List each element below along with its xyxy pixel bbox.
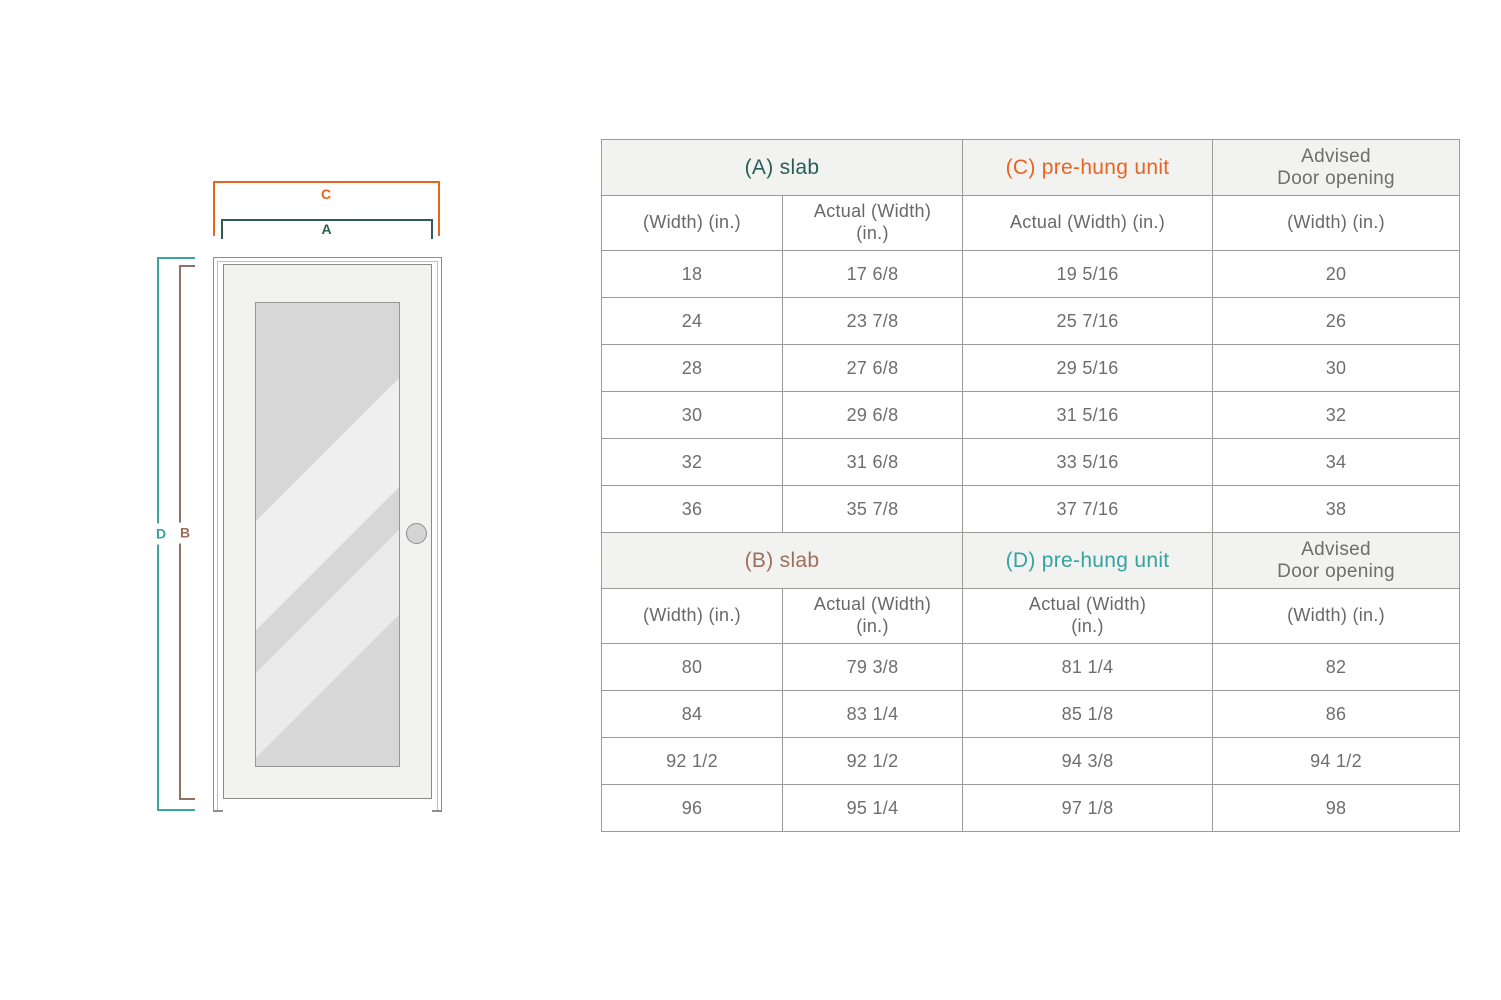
size-cell: 30 bbox=[602, 392, 783, 439]
dimension-d-label: D bbox=[155, 524, 168, 545]
door-diagram: C A D B bbox=[0, 0, 600, 1000]
size-cell: 29 6/8 bbox=[783, 392, 963, 439]
size-cell: 33 5/16 bbox=[963, 439, 1213, 486]
size-cell: 79 3/8 bbox=[783, 644, 963, 691]
table-row: 3231 6/833 5/1634 bbox=[602, 439, 1460, 486]
table-row: 8079 3/881 1/482 bbox=[602, 644, 1460, 691]
door-jamb-right-foot bbox=[432, 810, 442, 812]
door-jamb-left-foot bbox=[213, 810, 223, 812]
size-cell: 38 bbox=[1213, 486, 1460, 533]
section-header-row: (B) slab(D) pre-hung unitAdvised Door op… bbox=[602, 533, 1460, 589]
size-cell: 25 7/16 bbox=[963, 298, 1213, 345]
column-header-cell: Actual (Width) (in.) bbox=[963, 196, 1213, 251]
size-cell: 26 bbox=[1213, 298, 1460, 345]
column-header-row: (Width) (in.)Actual (Width) (in.)Actual … bbox=[602, 589, 1460, 644]
size-cell: 80 bbox=[602, 644, 783, 691]
table-row: 3029 6/831 5/1632 bbox=[602, 392, 1460, 439]
size-cell: 97 1/8 bbox=[963, 785, 1213, 832]
column-header-cell: Actual (Width) (in.) bbox=[783, 196, 963, 251]
dimension-b-label: B bbox=[179, 522, 192, 543]
size-cell: 23 7/8 bbox=[783, 298, 963, 345]
section-header-cell: (D) pre-hung unit bbox=[963, 533, 1213, 589]
size-cell: 32 bbox=[1213, 392, 1460, 439]
section-header-cell: (A) slab bbox=[602, 140, 963, 196]
size-cell: 36 bbox=[602, 486, 783, 533]
table-row: 9695 1/497 1/898 bbox=[602, 785, 1460, 832]
size-cell: 92 1/2 bbox=[602, 738, 783, 785]
size-cell: 82 bbox=[1213, 644, 1460, 691]
column-header-cell: (Width) (in.) bbox=[1213, 589, 1460, 644]
table-row: 3635 7/837 7/1638 bbox=[602, 486, 1460, 533]
size-cell: 86 bbox=[1213, 691, 1460, 738]
size-cell: 30 bbox=[1213, 345, 1460, 392]
column-header-cell: (Width) (in.) bbox=[602, 196, 783, 251]
size-cell: 31 6/8 bbox=[783, 439, 963, 486]
section-header-cell: Advised Door opening bbox=[1213, 140, 1460, 196]
door-knob bbox=[406, 523, 427, 544]
size-cell: 18 bbox=[602, 251, 783, 298]
table-row: 92 1/292 1/294 3/894 1/2 bbox=[602, 738, 1460, 785]
size-cell: 34 bbox=[1213, 439, 1460, 486]
column-header-row: (Width) (in.)Actual (Width) (in.)Actual … bbox=[602, 196, 1460, 251]
size-cell: 19 5/16 bbox=[963, 251, 1213, 298]
size-cell: 83 1/4 bbox=[783, 691, 963, 738]
dimension-a-bracket: A bbox=[221, 219, 433, 239]
section-header-cell: (B) slab bbox=[602, 533, 963, 589]
column-header-cell: Actual (Width) (in.) bbox=[963, 589, 1213, 644]
section-header-cell: (C) pre-hung unit bbox=[963, 140, 1213, 196]
size-cell: 37 7/16 bbox=[963, 486, 1213, 533]
dimension-c-label: C bbox=[317, 187, 336, 202]
table-row: 8483 1/485 1/886 bbox=[602, 691, 1460, 738]
table-row: 1817 6/819 5/1620 bbox=[602, 251, 1460, 298]
size-cell: 27 6/8 bbox=[783, 345, 963, 392]
size-cell: 94 1/2 bbox=[1213, 738, 1460, 785]
size-cell: 20 bbox=[1213, 251, 1460, 298]
section-header-row: (A) slab(C) pre-hung unitAdvised Door op… bbox=[602, 140, 1460, 196]
size-cell: 35 7/8 bbox=[783, 486, 963, 533]
size-cell: 96 bbox=[602, 785, 783, 832]
column-header-cell: (Width) (in.) bbox=[602, 589, 783, 644]
column-header-cell: (Width) (in.) bbox=[1213, 196, 1460, 251]
section-header-cell: Advised Door opening bbox=[1213, 533, 1460, 589]
column-header-cell: Actual (Width) (in.) bbox=[783, 589, 963, 644]
table-row: 2827 6/829 5/1630 bbox=[602, 345, 1460, 392]
door-size-table: (A) slab(C) pre-hung unitAdvised Door op… bbox=[601, 139, 1460, 832]
size-cell: 98 bbox=[1213, 785, 1460, 832]
size-cell: 32 bbox=[602, 439, 783, 486]
table-row: 2423 7/825 7/1626 bbox=[602, 298, 1460, 345]
size-cell: 84 bbox=[602, 691, 783, 738]
door-sizing-infographic: C A D B (A) slab(C) pre-hung unitAdvised… bbox=[0, 0, 1501, 1000]
size-cell: 28 bbox=[602, 345, 783, 392]
size-cell: 95 1/4 bbox=[783, 785, 963, 832]
size-cell: 17 6/8 bbox=[783, 251, 963, 298]
size-cell: 31 5/16 bbox=[963, 392, 1213, 439]
dimension-a-label: A bbox=[317, 222, 336, 237]
glass-panel bbox=[255, 302, 400, 767]
size-cell: 81 1/4 bbox=[963, 644, 1213, 691]
dimension-b-bracket: B bbox=[179, 265, 195, 800]
size-cell: 29 5/16 bbox=[963, 345, 1213, 392]
size-cell: 94 3/8 bbox=[963, 738, 1213, 785]
size-cell: 85 1/8 bbox=[963, 691, 1213, 738]
size-table-container: (A) slab(C) pre-hung unitAdvised Door op… bbox=[601, 139, 1460, 832]
size-cell: 24 bbox=[602, 298, 783, 345]
size-cell: 92 1/2 bbox=[783, 738, 963, 785]
